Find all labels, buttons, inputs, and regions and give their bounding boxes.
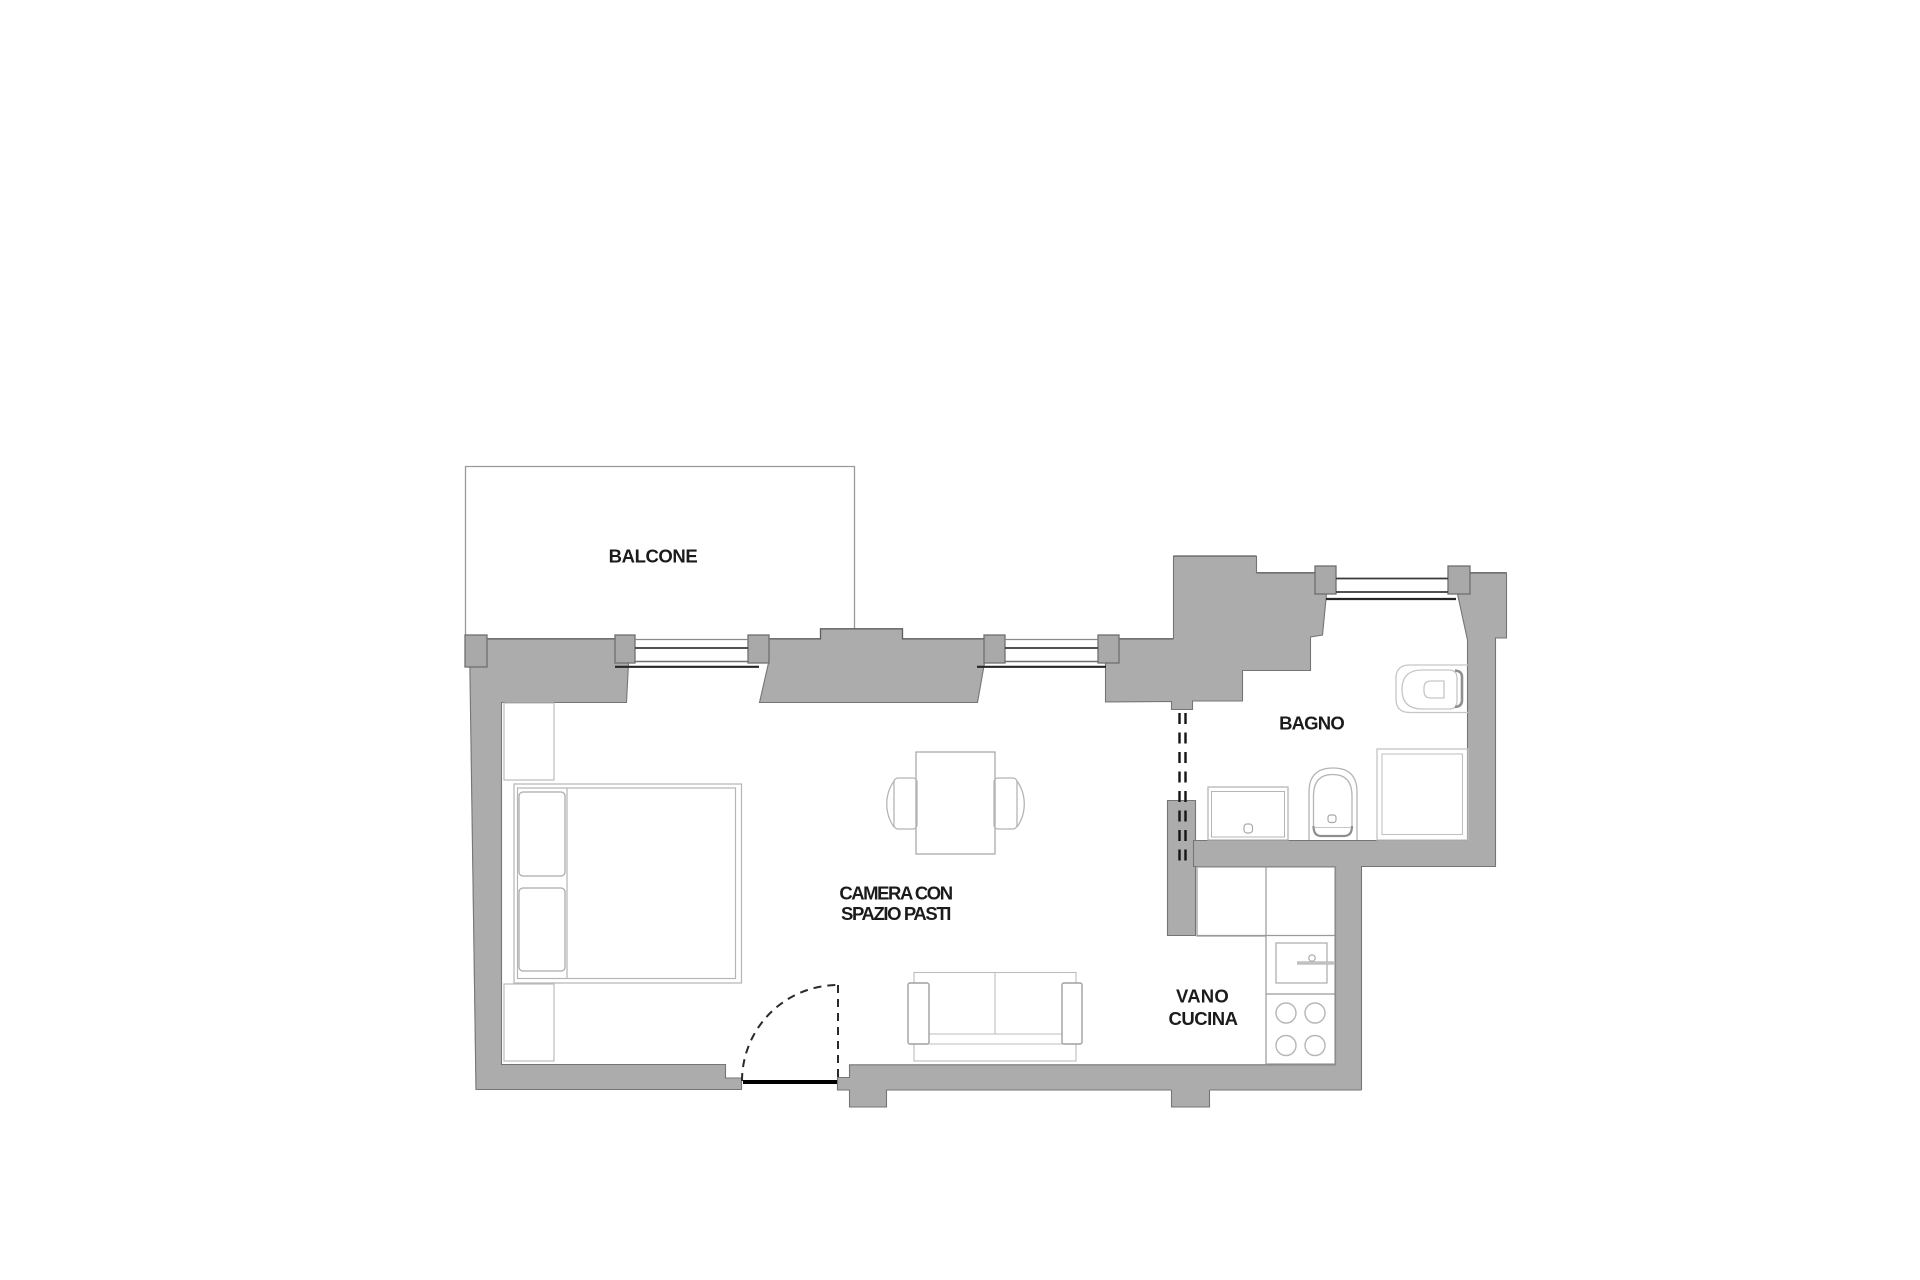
svg-text:SPAZIO PASTI: SPAZIO PASTI — [841, 903, 950, 924]
svg-text:VANO: VANO — [1176, 986, 1229, 1007]
svg-text:BALCONE: BALCONE — [609, 546, 698, 567]
svg-text:CUCINA: CUCINA — [1169, 1008, 1238, 1029]
svg-text:BAGNO: BAGNO — [1279, 713, 1344, 734]
svg-text:CAMERA CON: CAMERA CON — [839, 883, 952, 904]
